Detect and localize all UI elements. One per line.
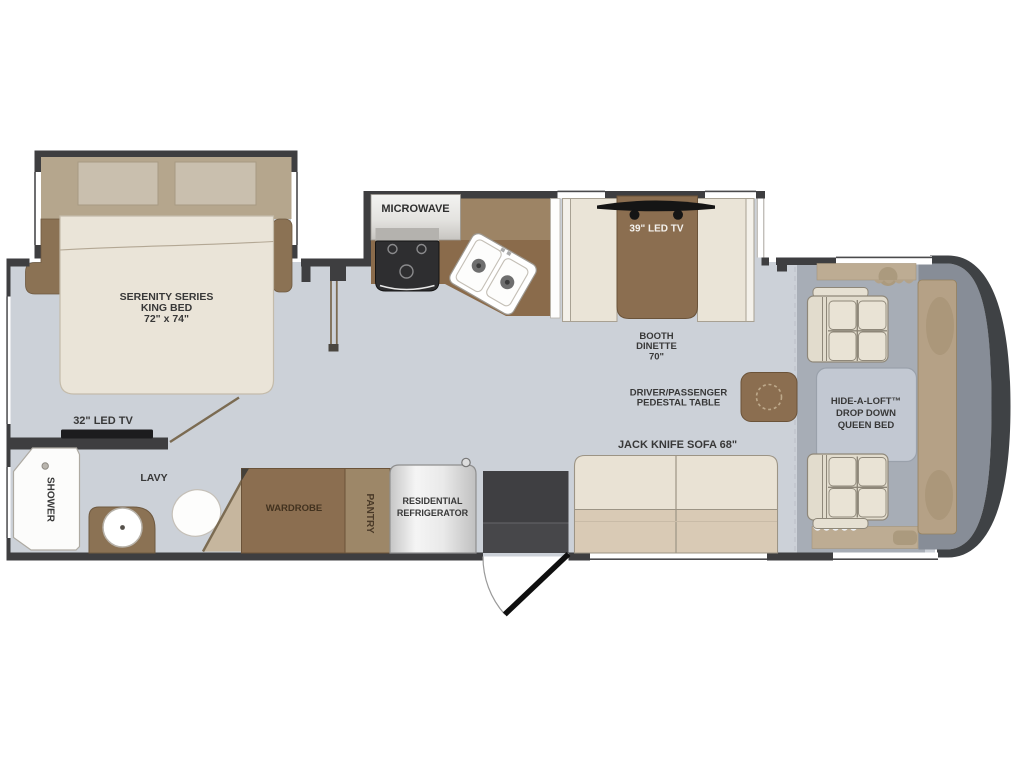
svg-text:JACK KNIFE SOFA 68": JACK KNIFE SOFA 68"	[618, 439, 737, 451]
svg-text:32" LED TV: 32" LED TV	[73, 415, 133, 427]
svg-text:DINETTE: DINETTE	[636, 341, 677, 352]
svg-text:MICROWAVE: MICROWAVE	[381, 203, 449, 215]
svg-text:70": 70"	[649, 352, 664, 363]
svg-text:RESIDENTIAL: RESIDENTIAL	[402, 496, 463, 506]
svg-text:39" LED TV: 39" LED TV	[629, 224, 684, 235]
svg-text:PEDESTAL TABLE: PEDESTAL TABLE	[637, 398, 720, 409]
svg-text:WARDROBE: WARDROBE	[266, 503, 322, 514]
svg-text:LAVY: LAVY	[140, 472, 167, 484]
svg-text:72" x 74": 72" x 74"	[144, 313, 189, 325]
svg-text:DROP DOWN: DROP DOWN	[836, 408, 896, 419]
svg-text:HIDE-A-LOFT™: HIDE-A-LOFT™	[831, 396, 901, 407]
svg-text:SHOWER: SHOWER	[45, 477, 56, 523]
svg-text:PANTRY: PANTRY	[364, 494, 375, 534]
svg-text:QUEEN BED: QUEEN BED	[838, 420, 895, 431]
svg-text:REFRIGERATOR: REFRIGERATOR	[397, 508, 469, 518]
